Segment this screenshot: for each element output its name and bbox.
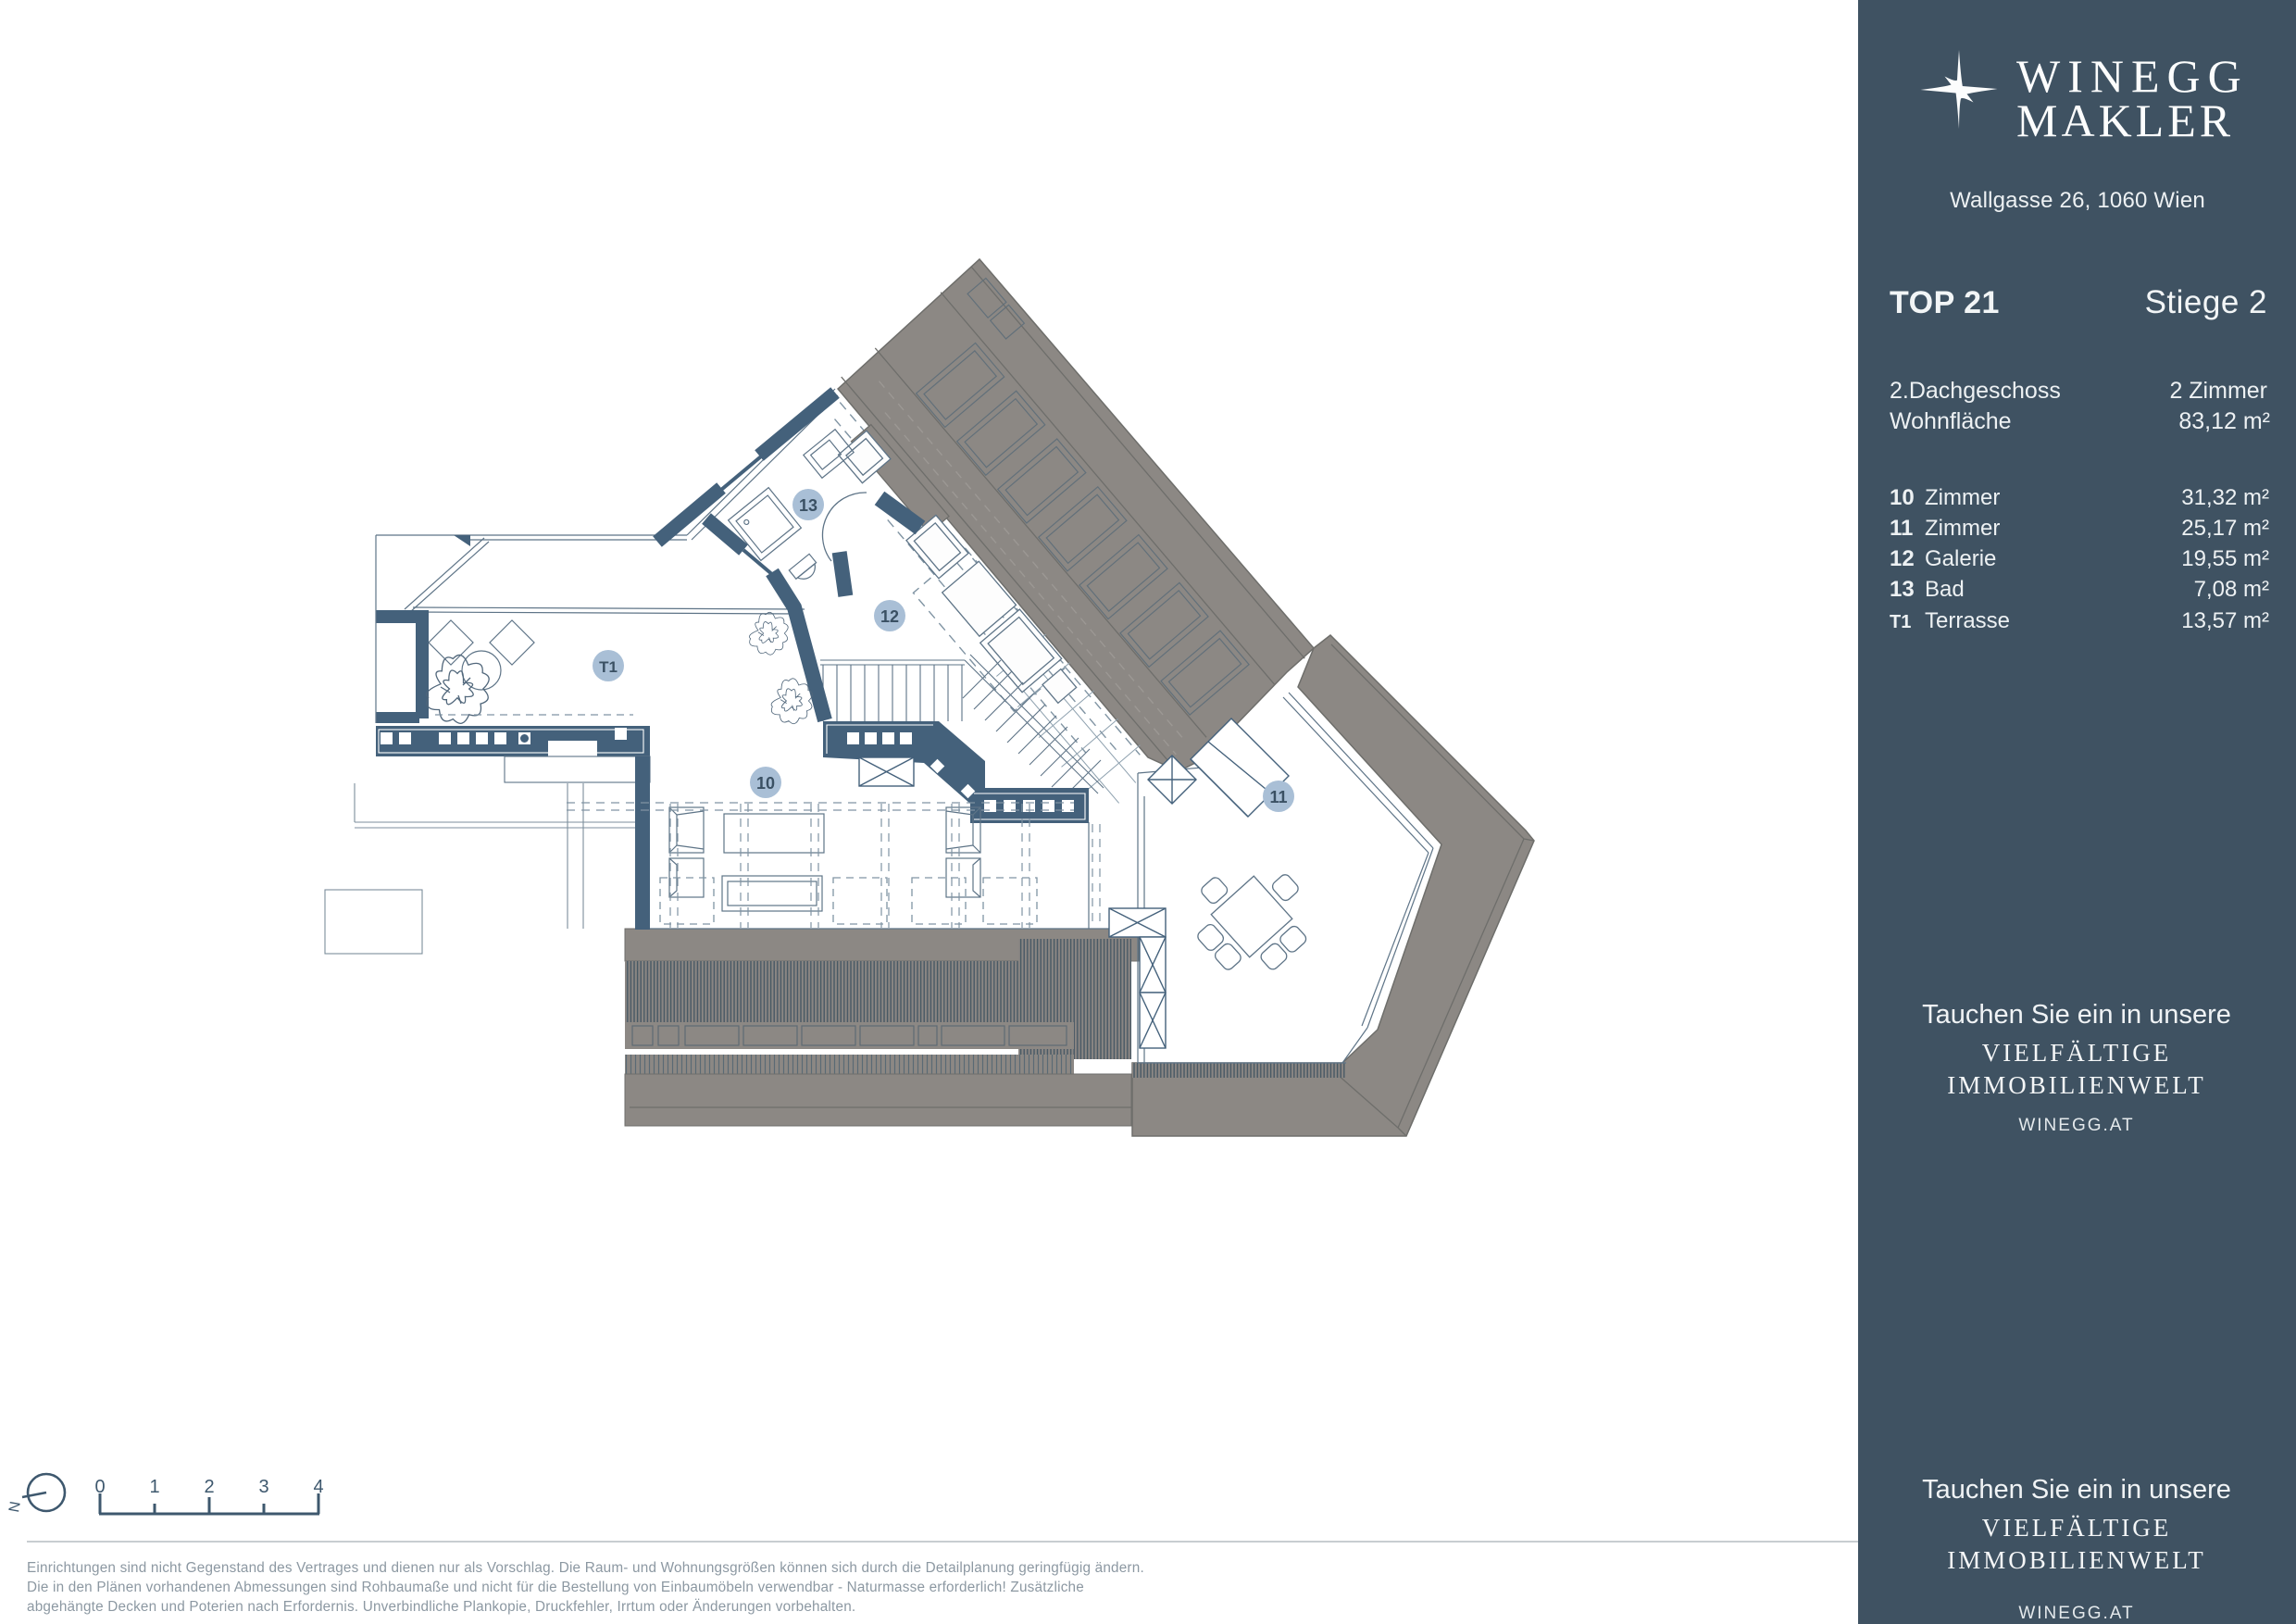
svg-text:2 Zimmer: 2 Zimmer	[2169, 378, 2267, 404]
svg-text:TOP 21: TOP 21	[1890, 285, 2000, 320]
svg-text:Stiege 2: Stiege 2	[2145, 284, 2267, 320]
svg-text:VIELFÄLTIGE: VIELFÄLTIGE	[1982, 1039, 2171, 1067]
svg-text:2.Dachgeschoss: 2.Dachgeschoss	[1890, 378, 2061, 404]
svg-text:abgehängte Decken und Poterien: abgehängte Decken und Poterien nach Erfo…	[27, 1599, 855, 1615]
svg-text:Zimmer: Zimmer	[1925, 485, 2000, 510]
svg-text:VIELFÄLTIGE: VIELFÄLTIGE	[1982, 1514, 2171, 1542]
svg-text:Galerie: Galerie	[1925, 546, 1996, 571]
svg-text:12: 12	[1890, 546, 1915, 571]
svg-text:31,32 m²: 31,32 m²	[2181, 485, 2269, 510]
svg-text:11: 11	[1890, 516, 1913, 541]
svg-text:Die in den Plänen vorhandenen: Die in den Plänen vorhandenen Abmessunge…	[27, 1580, 1084, 1595]
svg-text:WINEGG.AT: WINEGG.AT	[2018, 1116, 2134, 1135]
svg-text:T1: T1	[1890, 612, 1911, 632]
svg-text:Zimmer: Zimmer	[1925, 516, 2000, 541]
svg-text:T1: T1	[599, 658, 618, 676]
svg-text:3: 3	[258, 1477, 268, 1497]
svg-text:10: 10	[1890, 485, 1915, 510]
svg-text:Terrasse: Terrasse	[1925, 608, 2010, 633]
svg-text:1: 1	[149, 1477, 159, 1497]
svg-text:13: 13	[799, 496, 817, 515]
svg-text:Wohnfläche: Wohnfläche	[1890, 408, 2012, 434]
svg-text:25,17 m²: 25,17 m²	[2181, 516, 2269, 541]
svg-text:19,55 m²: 19,55 m²	[2181, 546, 2269, 571]
svg-text:Wallgasse 26, 1060 Wien: Wallgasse 26, 1060 Wien	[1950, 188, 2205, 213]
svg-text:Bad: Bad	[1925, 577, 1965, 602]
svg-text:2: 2	[204, 1477, 214, 1497]
svg-text:Tauchen Sie ein in unsere: Tauchen Sie ein in unsere	[1922, 1000, 2231, 1030]
svg-text:7,08 m²: 7,08 m²	[2194, 577, 2269, 602]
svg-text:Einrichtungen sind nicht Gegen: Einrichtungen sind nicht Gegenstand des …	[27, 1560, 1144, 1576]
svg-text:83,12 m²: 83,12 m²	[2178, 408, 2270, 434]
svg-text:12: 12	[880, 607, 899, 626]
svg-text:10: 10	[756, 774, 775, 793]
svg-text:13: 13	[1890, 577, 1915, 602]
svg-text:IMMOBILIENWELT: IMMOBILIENWELT	[1947, 1071, 2205, 1099]
svg-text:13,57 m²: 13,57 m²	[2181, 608, 2269, 633]
svg-text:11: 11	[1269, 788, 1287, 806]
svg-text:Tauchen Sie ein in unsere: Tauchen Sie ein in unsere	[1922, 1475, 2231, 1505]
svg-text:WINEGG.AT: WINEGG.AT	[2018, 1604, 2134, 1623]
svg-text:MAKLER: MAKLER	[2016, 94, 2234, 146]
svg-text:IMMOBILIENWELT: IMMOBILIENWELT	[1947, 1546, 2205, 1574]
